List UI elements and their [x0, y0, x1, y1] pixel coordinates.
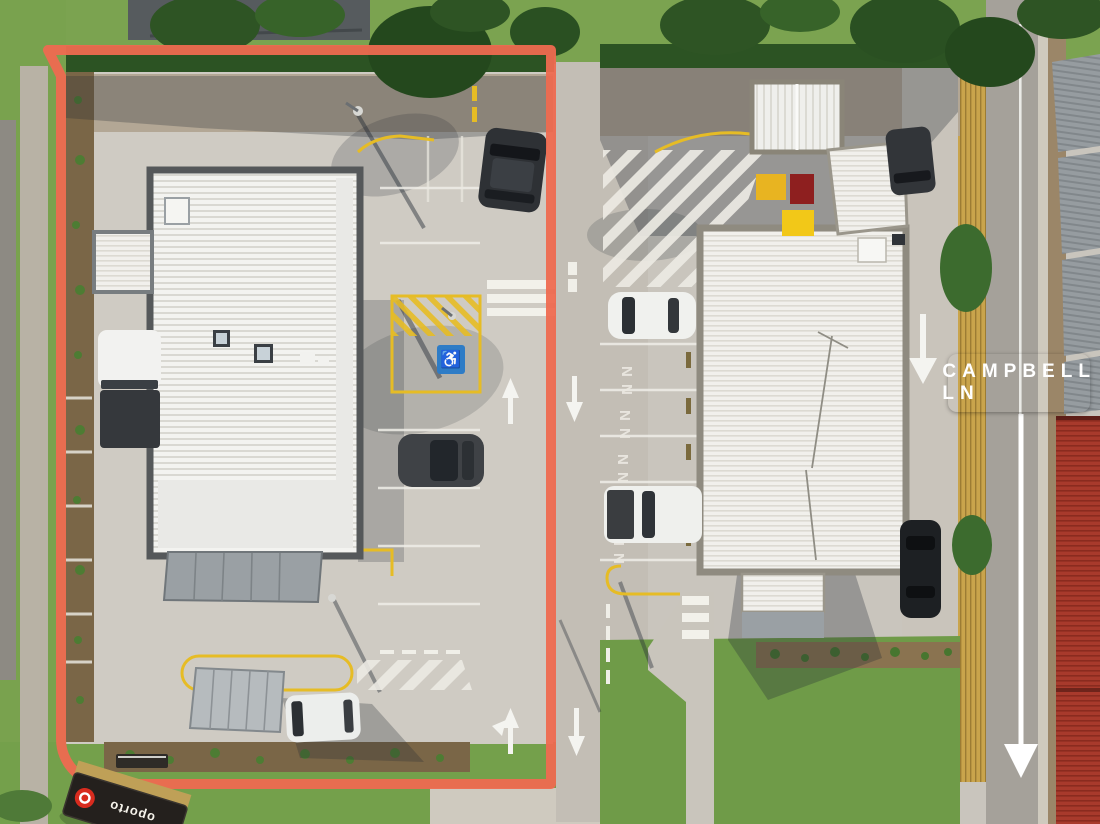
street-name-label: CAMPBELL LN [942, 361, 1095, 405]
car-black-east [900, 520, 941, 618]
road-kerb [1038, 0, 1048, 824]
pickup-white-lot2-bay [604, 486, 702, 543]
zebra-crossing-lot2 [682, 596, 709, 639]
play-equipment-red [790, 174, 814, 204]
svg-text:N: N [616, 410, 633, 421]
aerial-photo: N N N N N N N N [0, 0, 1100, 824]
red-roof-seam [1056, 688, 1100, 692]
svg-text:N: N [614, 454, 631, 465]
disabled-parking-icon: ♿ [437, 345, 465, 374]
svg-text:N: N [616, 428, 633, 439]
drive-thru-awning [164, 552, 322, 602]
building2-roof-box [858, 238, 886, 262]
building2-roof [700, 228, 906, 572]
street-name-sign: CAMPBELL LN [948, 354, 1090, 412]
left-footpath [20, 66, 48, 824]
svg-text:N: N [610, 553, 627, 564]
disabled-parking-glyph: ♿ [440, 350, 461, 370]
roof-unit-2 [318, 356, 329, 366]
yellow-hatch-bay [392, 296, 480, 336]
svg-text:N: N [614, 472, 631, 483]
campbell-lane-road [950, 0, 1100, 824]
waiting-carport [190, 668, 284, 732]
suv-white-carport [285, 692, 361, 743]
street-furniture [116, 754, 168, 768]
streetlight-3 [328, 594, 336, 602]
neighbour-red-roof [1056, 416, 1100, 824]
side-awning [94, 232, 152, 292]
red-roof-edge [1056, 416, 1100, 420]
drive-thru-canopy-south [742, 574, 824, 638]
building1-flat-south [158, 480, 353, 548]
play-equipment-yellow-2 [782, 210, 814, 236]
aerial-scene: N N N N N N N N [0, 0, 1100, 824]
svg-text:N: N [618, 384, 635, 395]
box-truck-loading [98, 330, 161, 448]
left-road-sliver [0, 120, 16, 680]
suv-dark-parked-top [477, 127, 548, 214]
skylight-1-glass [216, 333, 227, 344]
play-area-canopy [752, 82, 842, 152]
skylight-2-glass [257, 347, 270, 360]
roof-unit-1 [300, 352, 315, 364]
zebra-crossing-lot1 [487, 280, 555, 316]
hatch-patch-south [357, 660, 472, 690]
road-surface [986, 0, 1042, 824]
car-dark-disabled-bay [398, 434, 484, 487]
svg-text:N: N [618, 366, 635, 377]
yellow-fence [956, 58, 986, 782]
roof-vent-box [165, 198, 189, 224]
suv-dark-east-top [885, 126, 937, 196]
building2-roof-notch [892, 234, 905, 245]
car-white-lot2-bay [608, 292, 696, 339]
play-equipment-yellow-1 [756, 174, 786, 200]
